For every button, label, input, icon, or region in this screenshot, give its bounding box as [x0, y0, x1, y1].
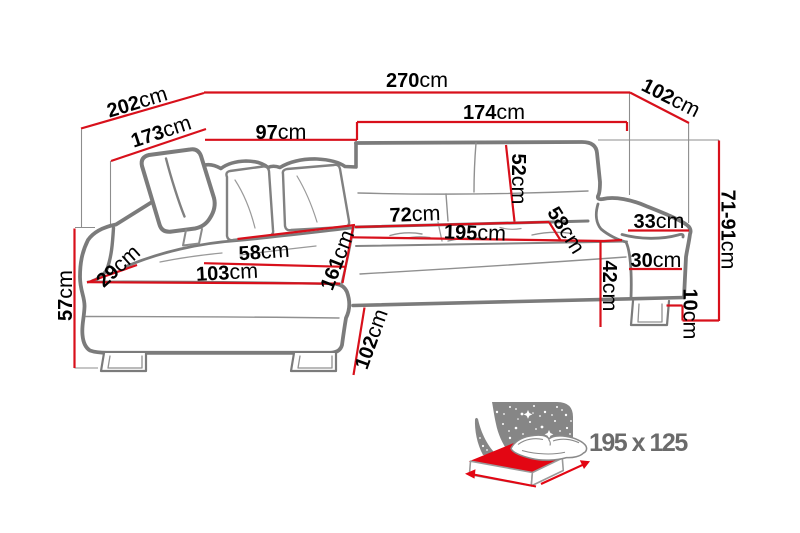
svg-text:10cm: 10cm — [679, 289, 703, 340]
svg-text:52cm: 52cm — [507, 154, 531, 205]
svg-text:195 x 125: 195 x 125 — [589, 429, 688, 457]
svg-text:174cm: 174cm — [463, 100, 525, 124]
svg-text:71-91cm: 71-91cm — [717, 190, 741, 270]
svg-text:270cm: 270cm — [386, 68, 448, 92]
svg-text:42cm: 42cm — [598, 261, 622, 312]
svg-text:30cm: 30cm — [631, 248, 682, 272]
svg-text:72cm: 72cm — [389, 201, 441, 227]
svg-text:58cm: 58cm — [238, 238, 290, 265]
svg-text:33cm: 33cm — [634, 209, 685, 233]
svg-text:57cm: 57cm — [53, 270, 77, 321]
svg-text:195cm: 195cm — [444, 219, 507, 245]
svg-text:97cm: 97cm — [256, 120, 307, 144]
